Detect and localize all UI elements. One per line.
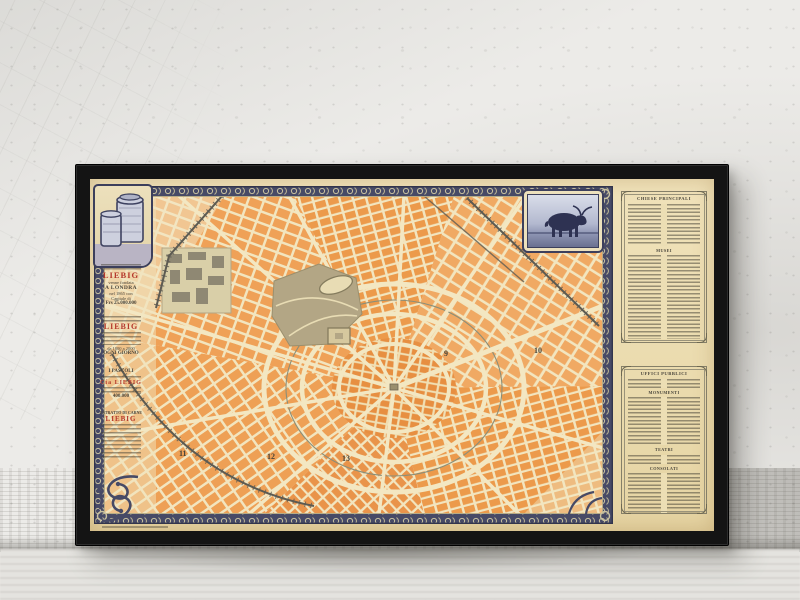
picture-frame: 9 10 11 12 13 [76,165,728,545]
ox-vignette [522,189,604,253]
exposition-grounds [162,248,231,313]
ad-line: I PASCOLI [96,369,146,375]
ad-block-pastures: I PASCOLI Cía LIEBIG 400.000 [96,369,146,403]
index-microtext [628,455,700,464]
ad-line: 400.000 [96,394,146,400]
ad-block-preparation: LIEBIG da 1800 a 2000 OGNI GIORNO [96,315,146,361]
index-microtext [628,379,700,388]
panel-corner-ornament [621,366,631,376]
index-panel-title: UFFICI PUBBLICI [624,372,704,377]
liebig-brand-text: LIEBIG [96,323,146,331]
index-section-title: TEATRI [624,448,704,452]
panel-corner-ornament [697,366,707,376]
panel-corner-ornament [621,504,631,514]
liebig-brand-text: Cía LIEBIG [96,380,146,386]
ad-line: Frs 25.000.000 [96,301,146,307]
panel-corner-ornament [621,333,631,343]
ad-microtext [101,376,141,379]
panel-corner-ornament [697,191,707,201]
liebig-jars-vignette [93,184,153,268]
printer-imprint [102,526,168,528]
index-microtext [628,473,700,513]
index-section-title: MONUMENTI [624,391,704,395]
ox-illustration [527,194,599,248]
park [272,264,362,346]
ad-microtext [101,387,141,393]
district-number: 12 [267,452,275,461]
liebig-brand-text: LIEBIG [96,271,146,280]
foreground-surface [0,549,800,600]
district-number: 11 [179,449,187,458]
district-number: 10 [534,346,542,355]
index-microtext [628,204,700,246]
ad-block-founding: LIEBIG venne fondata A LONDRA nel 1865 c… [96,263,146,309]
index-section-title: CONSOLATI [624,467,704,471]
index-panel-public-offices: UFFICI PUBBLICI MONUMENTI TEATRI CONSOLA… [621,366,707,514]
ad-line: OGNI GIORNO [96,351,146,357]
index-section-title: MUSEI [624,249,704,253]
ad-microtext [101,332,141,345]
cathedral [390,384,398,390]
ad-block-extract: ESTRATTO DI CARNE LIEBIG [96,411,146,469]
map-sheet: 9 10 11 12 13 [90,179,714,531]
index-microtext [628,397,700,445]
corner-flourish-bottom-left [94,471,144,528]
index-panel-title: CHIESE PRINCIPALI [624,197,704,202]
district-number: 9 [444,349,448,358]
ad-microtext [101,424,141,460]
panel-corner-ornament [621,191,631,201]
index-panel-churches: CHIESE PRINCIPALI MUSEI [621,191,707,343]
district-number: 13 [342,454,350,463]
panel-corner-ornament [697,504,707,514]
liebig-brand-text: LIEBIG [96,416,146,423]
panel-corner-ornament [697,333,707,343]
photo-scene: 9 10 11 12 13 [0,0,800,600]
index-microtext [628,255,700,339]
liebig-jars-illustration [95,186,151,266]
